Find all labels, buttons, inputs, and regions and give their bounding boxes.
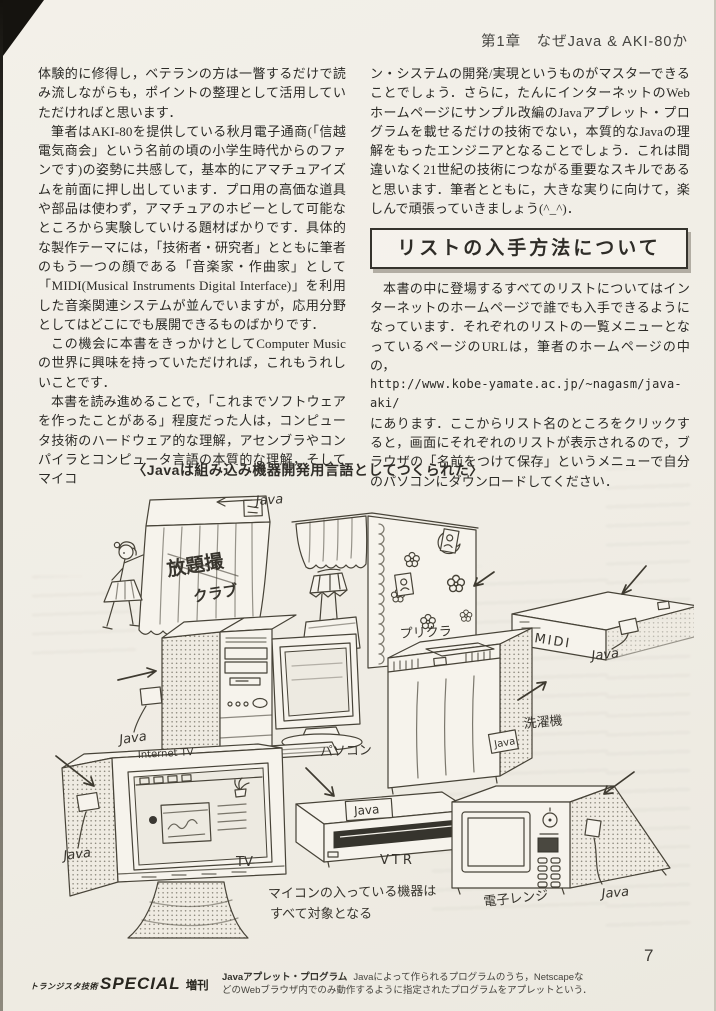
java-sign: Java [345,798,392,820]
vtr-label: VTR [380,853,415,868]
java-sticker: Java [488,730,518,753]
right-text-column: ン・システムの開発/実現というものがマスターできることでしょう．さらに，たんにイ… [370,64,690,491]
glossary-definition: Javaによって作られるプログラムのうち，Netscapeな [353,972,583,983]
magazine-logo: トランジスタ技術 SPECIAL 増刊 [30,974,209,994]
magazine-logo-extra: 増刊 [186,977,209,993]
java-tag: Java [598,885,630,903]
chapter-header: 第1章 なぜJava & AKI-80か [481,30,688,51]
section-heading-box: リストの入手方法について [370,228,688,268]
paragraph: 体験的に修得し，ベテランの方は一瞥するだけで読み流しながらも，ポイントの整理とし… [38,64,346,122]
left-text-column: 体験的に修得し，ベテランの方は一瞥するだけで読み流しながらも，ポイントの整理とし… [38,64,346,491]
illustration-note: マイコンの入っている機器は すべて対象となる [268,884,437,922]
body-text-columns: 体験的に修得し，ベテランの方は一瞥するだけで読み流しながらも，ポイントの整理とし… [38,64,690,491]
java-sticker [140,687,162,705]
illustration-internet-tv: Internet TV Java [56,744,286,938]
paragraph: ン・システムの開発/実現というものがマスターできることでしょう．さらに，たんにイ… [370,64,690,218]
glossary-definition: どのWebブラウザ内でのみ動作するように指定されたプログラムをアプレットという． [222,985,592,996]
java-tag: Java [252,492,283,509]
java-sticker [77,793,99,812]
photo-sticker-card [395,573,414,596]
note-line: マイコンの入っている機器は [268,884,437,902]
embedded-devices-illustration: 放題撮 クラブ Java [22,486,694,960]
illustration-caption: 〈Javaは組み込み機器開発用言語としてつくられた〉 [0,460,616,480]
java-tag: Java [353,802,380,818]
java-tag: Java [115,729,147,748]
glossary-footnote: Javaアプレット・プログラムJavaによって作られるプログラムのうち，Nets… [222,971,616,997]
screen-dot [149,816,157,824]
illustration-washing-machine: Java 洗濯機 [388,628,563,794]
list-download-url: http://www.kobe-yamate.ac.jp/~nagasm/jav… [370,375,690,414]
paragraph: 筆者はAKI-80を提供している秋月電子通商(「信越電気商会」という名前の頃の小… [38,122,346,334]
illustration-midi-module: MIDI Java [512,566,694,664]
paragraph: 本書の中に登場するすべてのリストについてはインターネットのホームページで誰でも入… [370,279,690,375]
washer-label: 洗濯機 [523,714,563,732]
tv-label: TV [235,855,253,870]
scan-corner-artifact [0,0,44,60]
magazine-logo-special: SPECIAL [100,974,181,994]
illustration-vcr: Java VTR [296,768,470,868]
photo-sticker-card [440,529,459,553]
microwave-label: 電子レンジ [483,888,549,910]
paragraph: この機会に本書をきっかけとしてComputer Musicの世界に興味を持ってい… [38,334,346,392]
page-number: 7 [644,946,653,966]
illustration-microwave: Java 電子レンジ [452,772,670,910]
java-sticker [619,618,638,634]
note-line: すべて対象となる [270,907,372,922]
java-sticker [585,819,601,837]
pc-label: パソコン [320,743,373,760]
scan-left-edge [0,0,3,1011]
scanned-magazine-page: 第1章 なぜJava & AKI-80か 体験的に修得し，ベテランの方は一瞥する… [0,0,716,1011]
glossary-term: Javaアプレット・プログラム [222,972,347,983]
java-tag: Java [588,646,620,664]
magazine-logo-name: トランジスタ技術 [30,981,98,992]
